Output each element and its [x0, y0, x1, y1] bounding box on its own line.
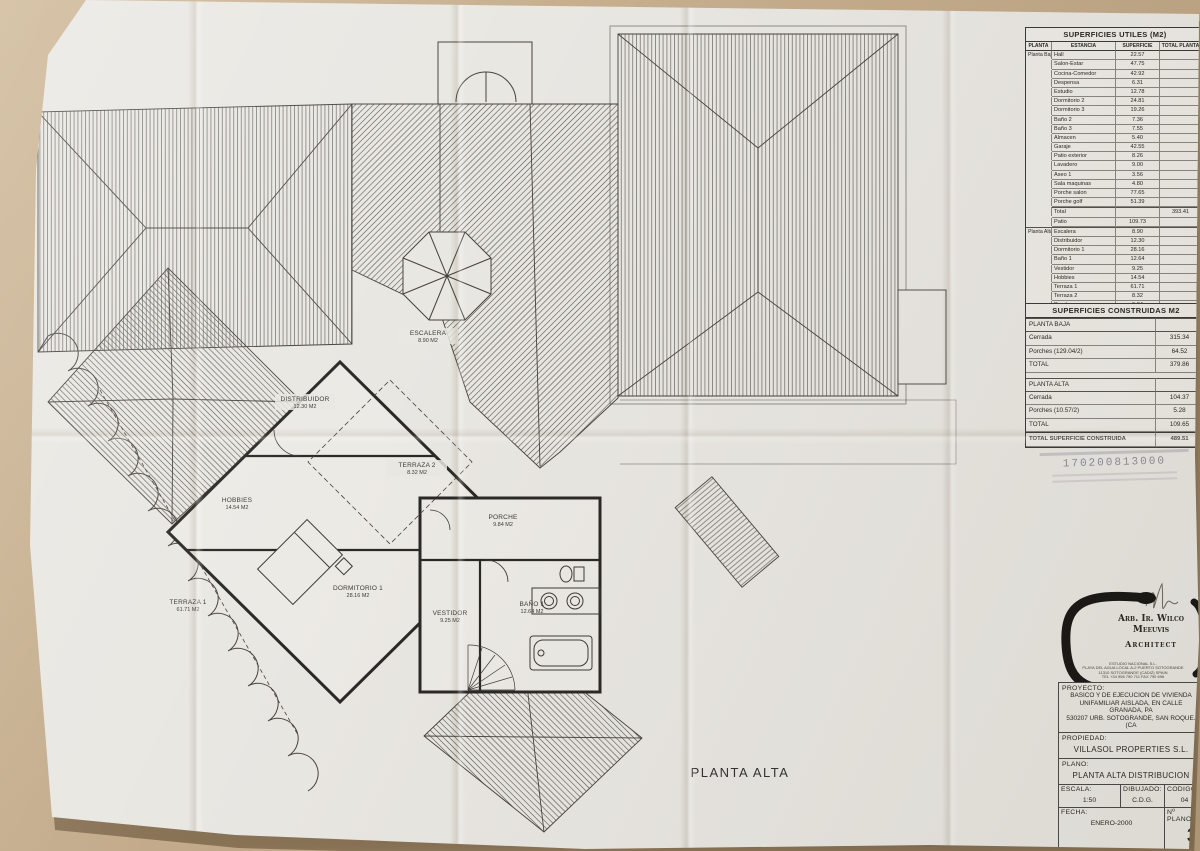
svg-text:8.32 M2: 8.32 M2: [407, 470, 427, 476]
fecha-cell: FECHA:ENERO-2000: [1059, 808, 1165, 850]
col-header: SUPERFICIE: [1116, 42, 1160, 51]
cell: [1160, 106, 1200, 115]
grand-total-value: 489.51: [1156, 432, 1200, 446]
cell: [1160, 227, 1200, 237]
cell: 315.34: [1156, 332, 1200, 345]
cell: Cerrada: [1026, 392, 1156, 405]
room-label: BAÑO 112.64 M2: [519, 599, 544, 615]
svg-text:HOBBIES: HOBBIES: [222, 497, 253, 504]
svg-text:PORCHE: PORCHE: [488, 514, 517, 521]
cell: Patio: [1052, 218, 1116, 227]
architect-name-block: Arb. Ir. Wilco Meeuvis Architect: [1100, 614, 1200, 650]
cell: 5.28: [1156, 405, 1200, 418]
cell: [1160, 246, 1200, 255]
cell: [1026, 125, 1052, 133]
superficies-utiles-table: SUPERFICIES UTILES (M2) PLANTAESTANCIASU…: [1025, 27, 1200, 332]
cell: [1026, 97, 1052, 105]
dibujado-cell: DIBUJADO:C.D.G.: [1121, 785, 1165, 807]
cell: 4.80: [1116, 180, 1160, 189]
cell: [1026, 106, 1052, 114]
cell: 14.54: [1116, 274, 1160, 283]
section-header: PLANTA BAJA: [1026, 318, 1156, 332]
total-row-label: TOTAL: [1026, 359, 1156, 372]
cell: 7.36: [1116, 116, 1160, 125]
fecha-value: ENERO-2000: [1061, 820, 1162, 827]
blueprint-paper: DISTRIBUIDOR12.30 M2 ESCALERA8.90 M2 TER…: [0, 0, 1200, 851]
cell: [1160, 218, 1200, 227]
svg-text:9.84 M2: 9.84 M2: [493, 522, 513, 528]
cell: Dormitorio 1: [1052, 246, 1116, 255]
cell: [1026, 198, 1052, 206]
cell: 104.37: [1156, 392, 1200, 405]
cell: [1160, 292, 1200, 301]
stamp-faded-line: [1052, 471, 1177, 476]
cell: Planta Baja: [1026, 51, 1052, 59]
cell: Vestidor: [1052, 265, 1116, 274]
svg-text:VESTIDOR: VESTIDOR: [433, 610, 468, 617]
stamp-number: 170200813000: [1022, 454, 1200, 471]
cell: 9.00: [1116, 161, 1160, 170]
cell: 51.39: [1116, 198, 1160, 207]
cell: Dormitorio 2: [1052, 97, 1116, 106]
cell: [1156, 318, 1200, 332]
cell: [1160, 171, 1200, 180]
cell: [1160, 88, 1200, 97]
fecha-row: FECHA:ENERO-2000 Nº PLANO:3: [1058, 807, 1200, 851]
cell: [1026, 161, 1052, 169]
cell: [1026, 171, 1052, 179]
cell: [1026, 60, 1052, 68]
escala-row: ESCALA:1:50 DIBUJADO:C.D.G. CODIGO:04: [1058, 784, 1200, 807]
cell: [1160, 283, 1200, 292]
cell: 7.55: [1116, 125, 1160, 134]
cell: [1160, 265, 1200, 274]
svg-text:12.30 M2: 12.30 M2: [294, 404, 317, 410]
cell: 24.81: [1116, 97, 1160, 106]
cell: [1160, 134, 1200, 143]
cell: Planta Alta: [1026, 227, 1052, 236]
plano-value: PLANTA ALTA DISTRIBUCION: [1062, 768, 1200, 782]
total-row-label: TOTAL: [1026, 419, 1156, 432]
cell: Garaje: [1052, 143, 1116, 152]
ground-floor-outline: [620, 400, 956, 464]
cell: Cocina-Comedor: [1052, 70, 1116, 79]
propiedad-label: PROPIEDAD:: [1062, 735, 1200, 742]
cell: 64.52: [1156, 346, 1200, 359]
cell: Porche golf: [1052, 198, 1116, 207]
cell: 8.26: [1116, 152, 1160, 161]
cell: Baño 2: [1052, 116, 1116, 125]
cell: [1026, 180, 1052, 188]
room-label: TERRAZA 161.71 M2: [169, 599, 206, 613]
cell: Porche salon: [1052, 189, 1116, 198]
propiedad-value: VILLASOL PROPERTIES S.L.: [1062, 742, 1200, 756]
plano-label: PLANO:: [1062, 761, 1200, 768]
garden-stairs: [675, 477, 779, 588]
cell: 8.32: [1116, 292, 1160, 301]
svg-text:DORMITORIO 1: DORMITORIO 1: [333, 585, 383, 592]
title-block: Arb. Ir. Wilco Meeuvis Architect ESTUDIO…: [1058, 570, 1200, 851]
svg-text:TERRAZA 2: TERRAZA 2: [398, 462, 435, 469]
table-title: SUPERFICIES UTILES (M2): [1026, 28, 1200, 42]
svg-text:14.54 M2: 14.54 M2: [226, 505, 249, 511]
cell: [1160, 161, 1200, 170]
cell: 5.40: [1116, 134, 1160, 143]
cell: 77.65: [1116, 189, 1160, 198]
cell: Sala maquinas: [1052, 180, 1116, 189]
svg-text:ESCALERA: ESCALERA: [410, 330, 447, 337]
cell: 12.64: [1116, 255, 1160, 264]
col-header: PLANTA: [1026, 42, 1052, 51]
plano-section: PLANO: PLANTA ALTA DISTRIBUCION: [1058, 758, 1200, 784]
svg-text:TERRAZA 1: TERRAZA 1: [169, 599, 206, 606]
planta-baja-total: 393.41: [1160, 207, 1200, 217]
cell: Escalera: [1052, 227, 1116, 237]
cell: 109.73: [1116, 218, 1160, 227]
superficies-construidas-table: SUPERFICIES CONSTRUIDAS M2 PLANTA BAJA C…: [1025, 303, 1200, 448]
room-label: ESCALERA8.90 M2: [398, 328, 458, 344]
cell: Porches (129.04/2): [1026, 346, 1156, 359]
cell: [1160, 180, 1200, 189]
cell: [1026, 283, 1052, 291]
svg-text:8.90 M2: 8.90 M2: [418, 338, 438, 344]
cell: [1026, 143, 1052, 151]
cell: Terraza 2: [1052, 292, 1116, 301]
cell: Despensa: [1052, 79, 1116, 88]
cell: 28.16: [1116, 246, 1160, 255]
planta-baja-total: 379.86: [1156, 359, 1200, 372]
cell: [1116, 207, 1160, 217]
cell: 42.92: [1116, 70, 1160, 79]
cell: 9.25: [1116, 265, 1160, 274]
svg-text:9.25 M2: 9.25 M2: [440, 618, 460, 624]
cell: [1026, 274, 1052, 282]
cell: Patio exterior: [1052, 152, 1116, 161]
photo-of-blueprint: DISTRIBUIDOR12.30 M2 ESCALERA8.90 M2 TER…: [0, 0, 1200, 851]
cell: [1026, 218, 1052, 226]
cell: Hobbies: [1052, 274, 1116, 283]
cell: 12.78: [1116, 88, 1160, 97]
cell: Almacen: [1052, 134, 1116, 143]
dibujado-value: C.D.G.: [1123, 797, 1162, 804]
cell: Baño 3: [1052, 125, 1116, 134]
cell: [1160, 51, 1200, 60]
cell: [1026, 265, 1052, 273]
cell: [1160, 70, 1200, 79]
proyecto-description: BASICO Y DE EJECUCION DE VIVIENDA UNIFAM…: [1062, 692, 1200, 730]
roof-top-right: [610, 26, 946, 404]
plan-title: PLANTA ALTA: [650, 765, 830, 780]
cell: 8.90: [1116, 227, 1160, 237]
room-label: TERRAZA 28.32 M2: [387, 460, 447, 476]
cell: 12.30: [1116, 237, 1160, 246]
cell: Baño 1: [1052, 255, 1116, 264]
cell: Hall: [1052, 51, 1116, 60]
cell: 19.26: [1116, 106, 1160, 115]
architect-title: Architect: [1100, 639, 1200, 650]
cell: 47.75: [1116, 60, 1160, 69]
cell: [1160, 237, 1200, 246]
cell: [1160, 79, 1200, 88]
cell: Cerrada: [1026, 332, 1156, 345]
cell: [1026, 134, 1052, 142]
cell: 61.71: [1116, 283, 1160, 292]
cell: [1156, 378, 1200, 392]
proyecto-section: PROYECTO: BASICO Y DE EJECUCION DE VIVIE…: [1058, 682, 1200, 732]
proyecto-label: PROYECTO:: [1062, 685, 1200, 692]
cell: [1026, 292, 1052, 300]
architect-name: Arb. Ir. Wilco Meeuvis: [1118, 614, 1184, 635]
cell: [1026, 246, 1052, 254]
escala-value: 1:50: [1061, 797, 1118, 804]
svg-text:28.16 M2: 28.16 M2: [347, 593, 370, 599]
cell: [1026, 237, 1052, 245]
floorplan-drawing: DISTRIBUIDOR12.30 M2 ESCALERA8.90 M2 TER…: [0, 0, 1200, 851]
cell: [1026, 207, 1052, 215]
cell: [1160, 152, 1200, 161]
svg-text:61.71 M2: 61.71 M2: [177, 607, 200, 613]
cell: [1160, 198, 1200, 207]
cell: [1026, 189, 1052, 197]
cell: [1160, 255, 1200, 264]
cell: [1026, 88, 1052, 96]
escala-cell: ESCALA:1:50: [1059, 785, 1121, 807]
cell: [1026, 116, 1052, 124]
grand-total-label: TOTAL SUPERFICIE CONSTRUIDA: [1026, 432, 1156, 446]
cell: [1160, 143, 1200, 152]
room-label: DISTRIBUIDOR12.30 M2: [275, 394, 335, 410]
cell: Salon-Estar: [1052, 60, 1116, 69]
cell: Distribuidor: [1052, 237, 1116, 246]
cell: 22.57: [1116, 51, 1160, 60]
stamp-faded-line: [1052, 477, 1177, 482]
registry-stamp: 170200813000: [1022, 445, 1200, 487]
cell: Aseo 1: [1052, 171, 1116, 180]
table-title: SUPERFICIES CONSTRUIDAS M2: [1026, 304, 1200, 318]
cell: [1160, 274, 1200, 283]
cell: Porches (10.57/2): [1026, 405, 1156, 418]
cell: Lavadero: [1052, 161, 1116, 170]
svg-text:DISTRIBUIDOR: DISTRIBUIDOR: [281, 396, 330, 403]
total-row-label: Total: [1052, 207, 1116, 217]
cell: Estudio: [1052, 88, 1116, 97]
cell: Terraza 1: [1052, 283, 1116, 292]
cell: 42.55: [1116, 143, 1160, 152]
cell: [1026, 152, 1052, 160]
cell: 3.56: [1116, 171, 1160, 180]
cell: [1026, 255, 1052, 263]
entry-gable: [438, 42, 532, 104]
architect-stamp: Arb. Ir. Wilco Meeuvis Architect ESTUDIO…: [1058, 570, 1200, 682]
cell: [1026, 70, 1052, 78]
cell: Dormitorio 3: [1052, 106, 1116, 115]
svg-text:12.64 M2: 12.64 M2: [521, 609, 544, 615]
cell: [1160, 116, 1200, 125]
cell: [1026, 79, 1052, 87]
cell: 6.31: [1116, 79, 1160, 88]
propiedad-section: PROPIEDAD: VILLASOL PROPERTIES S.L.: [1058, 732, 1200, 758]
col-header: TOTAL PLANTA: [1160, 42, 1200, 51]
tower-roof: [403, 232, 491, 320]
cell: [1160, 97, 1200, 106]
section-header: PLANTA ALTA: [1026, 378, 1156, 392]
architect-contact-info: ESTUDIO NACIONAL S.L. PLAYA DEL AGUA LOC…: [1068, 662, 1198, 680]
planta-alta-total: 109.65: [1156, 419, 1200, 432]
svg-text:BAÑO 1: BAÑO 1: [519, 599, 544, 608]
col-header: ESTANCIA: [1052, 42, 1116, 51]
cell: [1160, 60, 1200, 69]
cell: [1160, 125, 1200, 134]
cell: [1160, 189, 1200, 198]
